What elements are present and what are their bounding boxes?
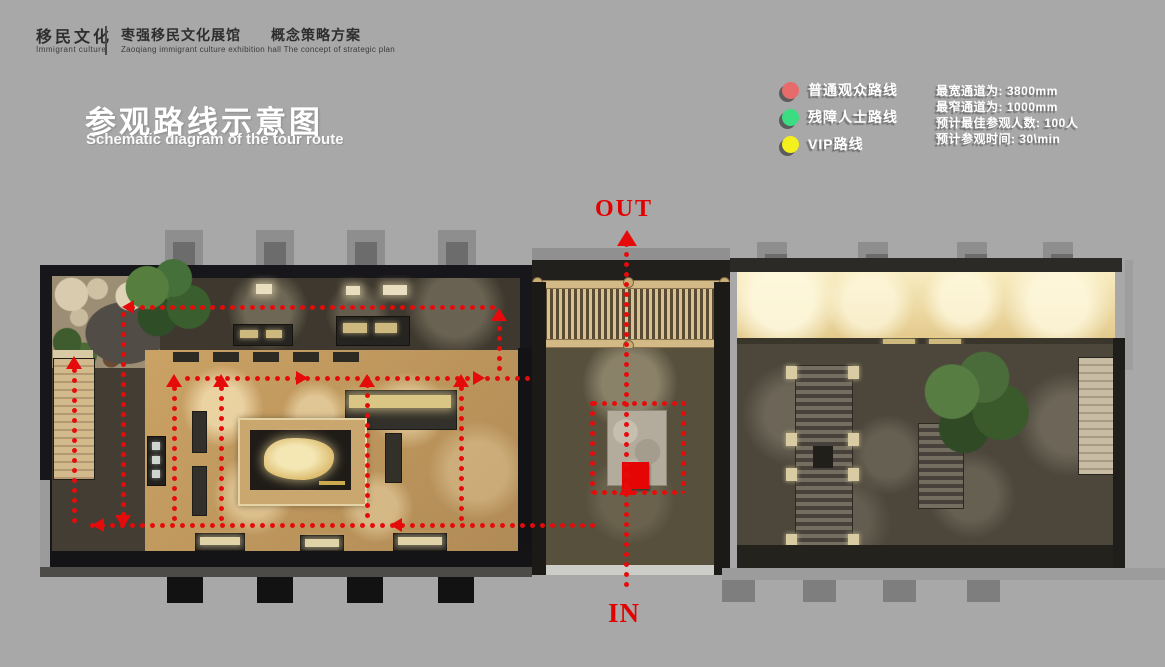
ceiling-light bbox=[383, 285, 407, 295]
legend-dot bbox=[782, 109, 799, 126]
entrance-label: IN bbox=[608, 598, 640, 629]
ceiling-light bbox=[346, 286, 360, 295]
display-table bbox=[333, 352, 359, 362]
right-hall-south-wall bbox=[737, 545, 1115, 568]
exhibit-pedestal bbox=[385, 433, 402, 483]
route-segment bbox=[459, 386, 464, 523]
display-light bbox=[240, 330, 258, 338]
right-staircase bbox=[1078, 357, 1116, 475]
route-arrow-left bbox=[122, 300, 134, 314]
facade-buttress bbox=[438, 230, 476, 268]
route-arrow-up bbox=[619, 482, 635, 495]
legend-item-disabled-route: 残障人士路线 bbox=[782, 107, 898, 127]
bench-light-pad bbox=[786, 366, 797, 379]
exhibit-pedestal bbox=[192, 466, 207, 516]
route-arrow-left bbox=[390, 518, 402, 532]
brand-title-zh: 移民文化 bbox=[36, 23, 112, 47]
display-table bbox=[293, 352, 319, 362]
route-segment bbox=[624, 242, 629, 592]
left-hall-south-wall bbox=[40, 551, 532, 567]
legend-label: 残障人士路线 bbox=[808, 107, 898, 127]
wall-display-case bbox=[147, 436, 166, 486]
route-arrow-up bbox=[491, 308, 507, 321]
display-table bbox=[253, 352, 279, 362]
route-segment bbox=[172, 386, 177, 523]
facade-buttress bbox=[722, 580, 755, 602]
display-light bbox=[152, 456, 160, 464]
bench-light-pad bbox=[786, 433, 797, 446]
facade-buttress bbox=[967, 580, 1000, 602]
route-arrow-down bbox=[115, 515, 131, 528]
east-facade-band bbox=[1125, 260, 1133, 370]
indoor-tree-right bbox=[913, 346, 1035, 466]
display-light bbox=[152, 470, 160, 478]
facade-buttress bbox=[883, 580, 916, 602]
display-counter bbox=[336, 316, 410, 346]
display-cabinet bbox=[195, 533, 245, 551]
project-title-en: Zaoqiang immigrant culture exhibition ha… bbox=[121, 45, 395, 54]
floor-plan bbox=[38, 228, 1128, 652]
legend-label: VIP路线 bbox=[808, 134, 864, 154]
route-arrow-up bbox=[66, 356, 82, 369]
stat-best-visitor-count: 预计最佳参观人数: 100人 bbox=[936, 114, 1078, 131]
display-table bbox=[213, 352, 239, 362]
facade-buttress bbox=[167, 577, 203, 603]
right-hall-east-wall bbox=[1113, 338, 1125, 568]
cabinet-light bbox=[305, 539, 339, 547]
stat-widest-passage: 最宽通道为: 3800mm bbox=[936, 82, 1058, 99]
bench-divider bbox=[813, 446, 833, 468]
slide-background: 移民文化 Immigrant culture 枣强移民文化展馆 概念策略方案 Z… bbox=[0, 0, 1165, 667]
facade-buttress bbox=[347, 577, 383, 603]
route-segment bbox=[121, 312, 126, 517]
route-segment bbox=[681, 401, 686, 493]
facade-buttress bbox=[256, 230, 294, 268]
page-subtitle: Schematic diagram of the tour route bbox=[86, 131, 344, 148]
route-segment bbox=[90, 523, 598, 528]
route-segment bbox=[219, 386, 224, 523]
route-arrow-right bbox=[473, 371, 485, 385]
bench-light-pad bbox=[848, 366, 859, 379]
header-divider bbox=[105, 26, 107, 55]
bench-light-pad bbox=[848, 433, 859, 446]
legend-item-vip-route: VIP路线 bbox=[782, 134, 864, 154]
ceiling-light bbox=[256, 284, 272, 294]
bench-light-pad bbox=[786, 468, 797, 481]
facade-buttress bbox=[257, 577, 293, 603]
brand-title-en: Immigrant culture bbox=[36, 45, 106, 54]
display-light bbox=[375, 323, 397, 333]
south-facade-band bbox=[722, 568, 1165, 580]
route-segment bbox=[592, 490, 683, 495]
map-panel bbox=[250, 430, 351, 490]
left-hall-plinth bbox=[40, 567, 532, 577]
route-segment bbox=[497, 316, 502, 376]
route-segment bbox=[130, 305, 498, 310]
display-light bbox=[266, 330, 282, 338]
route-segment bbox=[590, 401, 595, 493]
wooden-slat-bridge bbox=[535, 280, 727, 348]
display-cabinet bbox=[300, 535, 344, 551]
legend-item-normal-route: 普通观众路线 bbox=[782, 80, 898, 100]
lit-gallery-corridor bbox=[737, 272, 1115, 340]
cabinet-light bbox=[200, 537, 240, 545]
display-counter bbox=[233, 324, 293, 346]
right-hall-north-wall bbox=[730, 258, 1122, 272]
golden-map bbox=[264, 438, 334, 480]
lobby-east-wall bbox=[714, 282, 730, 575]
display-cabinet bbox=[393, 533, 447, 551]
route-arrow-up bbox=[617, 230, 637, 246]
central-map-exhibit bbox=[238, 418, 367, 506]
route-arrow-up bbox=[166, 374, 182, 387]
stat-narrowest-passage: 最窄通道为: 1000mm bbox=[936, 98, 1058, 115]
stat-visit-duration: 预计参观时间: 30\min bbox=[936, 130, 1060, 147]
lobby-west-wall bbox=[532, 282, 546, 575]
display-light bbox=[343, 323, 367, 333]
route-arrow-up bbox=[359, 374, 375, 387]
route-arrow-left bbox=[92, 518, 104, 532]
legend-label: 普通观众路线 bbox=[808, 80, 898, 100]
cabinet-light bbox=[398, 537, 442, 545]
entrance-sill bbox=[546, 565, 714, 575]
route-segment bbox=[365, 383, 370, 523]
project-title-zh: 枣强移民文化展馆 概念策略方案 bbox=[121, 25, 361, 45]
route-arrow-right bbox=[296, 371, 308, 385]
exhibit-pedestal bbox=[192, 411, 207, 453]
route-segment bbox=[72, 368, 77, 525]
west-facade-band bbox=[40, 480, 50, 567]
map-caption bbox=[319, 481, 345, 485]
lobby-roof-band bbox=[532, 248, 730, 260]
legend-dot bbox=[782, 136, 799, 153]
bench-light-pad bbox=[848, 468, 859, 481]
facade-buttress bbox=[438, 577, 474, 603]
route-arrow-up bbox=[453, 374, 469, 387]
route-segment bbox=[592, 401, 683, 406]
route-arrow-up bbox=[213, 374, 229, 387]
facade-buttress bbox=[803, 580, 836, 602]
facade-buttress bbox=[347, 230, 385, 268]
display-table bbox=[173, 352, 199, 362]
legend-dot bbox=[782, 82, 799, 99]
exit-label: OUT bbox=[595, 196, 653, 223]
display-light bbox=[152, 442, 160, 450]
